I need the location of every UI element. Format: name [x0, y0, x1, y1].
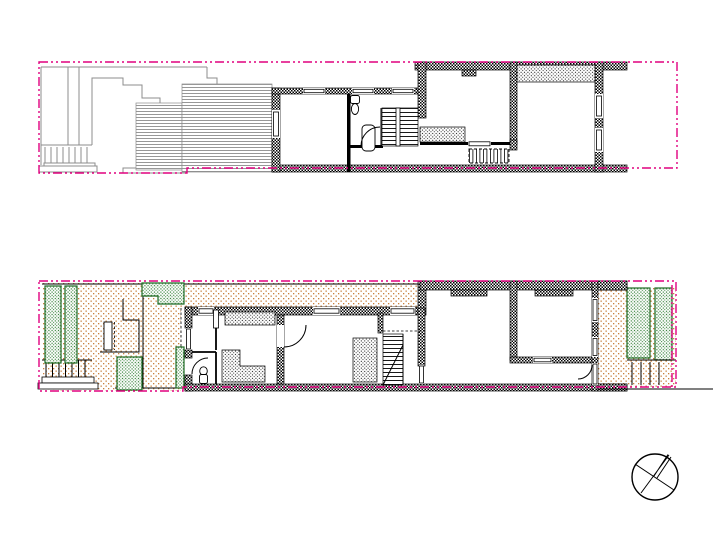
insulated-front-wall-band — [517, 65, 595, 82]
upper-walls — [272, 62, 627, 172]
architectural-floor-plan-drawing — [0, 0, 720, 540]
fitted-unit — [420, 127, 465, 142]
roof-deck — [136, 84, 272, 172]
upper-floor-plan — [39, 62, 677, 173]
toilet-icon — [351, 96, 360, 115]
ground-interior — [192, 310, 592, 385]
rooflight-below — [469, 149, 509, 163]
door-swing-arc — [578, 365, 592, 379]
door-swing-arc — [284, 325, 306, 347]
toilet-icon — [200, 367, 208, 384]
north-arrow — [632, 454, 678, 500]
ground-floor-plan — [38, 281, 713, 391]
upper-staircase — [382, 108, 418, 146]
kitchen-counter — [225, 312, 275, 325]
bath-icon — [362, 125, 375, 151]
chimney-breast — [353, 338, 377, 382]
kitchen-counter — [222, 350, 265, 382]
upper-interior — [347, 94, 510, 172]
